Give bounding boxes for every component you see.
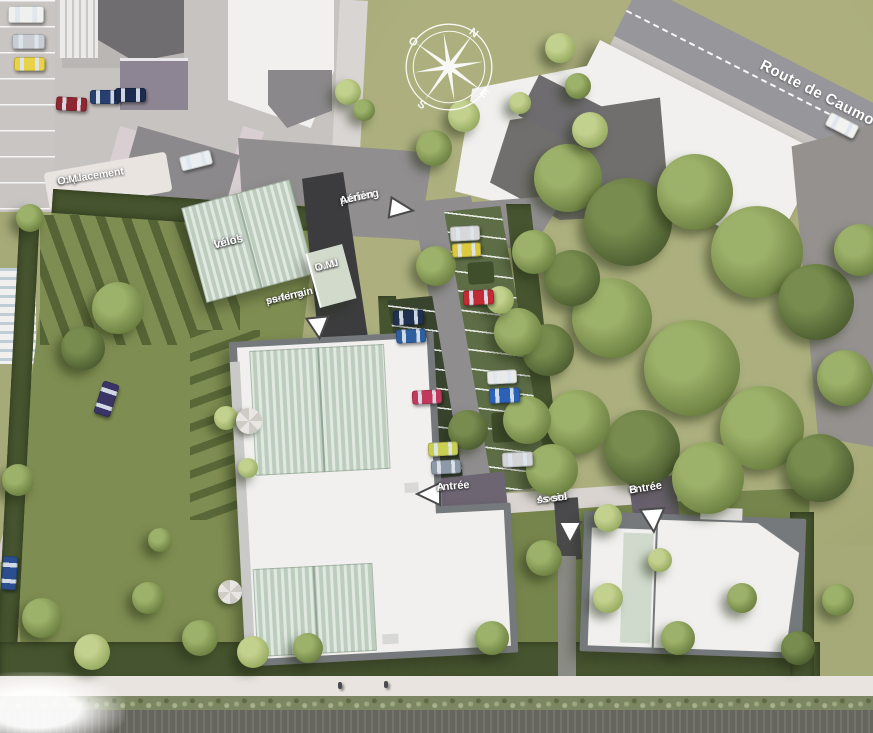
tree — [214, 406, 238, 430]
tree — [416, 246, 456, 286]
site-plan: Route de Caumont — [0, 0, 873, 733]
tree — [22, 598, 62, 638]
tree — [644, 320, 740, 416]
tree — [416, 130, 452, 166]
car — [396, 328, 427, 344]
tree — [353, 99, 375, 121]
car — [452, 242, 482, 257]
car — [179, 149, 214, 171]
tree — [786, 434, 854, 502]
tree — [238, 458, 258, 478]
car — [115, 88, 146, 102]
pedestrian — [338, 682, 342, 689]
car — [1, 556, 18, 591]
car — [487, 369, 518, 385]
car — [93, 380, 120, 418]
tree — [526, 444, 578, 496]
tree — [593, 583, 623, 613]
tree — [657, 154, 733, 230]
car — [12, 34, 45, 49]
parasol — [236, 408, 262, 434]
car — [489, 387, 521, 404]
tree — [74, 634, 110, 670]
tree — [778, 264, 854, 340]
tree — [545, 33, 575, 63]
car — [14, 57, 45, 71]
car — [412, 389, 443, 405]
tree — [661, 621, 695, 655]
tree — [604, 410, 680, 486]
car — [824, 112, 859, 140]
entree-a-line2: A — [436, 481, 445, 494]
tree — [781, 631, 815, 665]
parasol — [218, 580, 242, 604]
car — [56, 96, 88, 112]
car — [450, 225, 481, 242]
tree — [92, 282, 144, 334]
tree — [132, 582, 164, 614]
tree — [834, 224, 873, 276]
car — [393, 309, 425, 326]
tree — [503, 396, 551, 444]
pedestrian — [384, 681, 388, 688]
tree — [572, 112, 608, 148]
tree — [293, 633, 323, 663]
car — [502, 451, 534, 468]
car — [428, 441, 459, 457]
tree — [512, 230, 556, 274]
tree — [727, 583, 757, 613]
tree — [509, 92, 531, 114]
tree — [475, 621, 509, 655]
car — [431, 459, 462, 475]
tree — [494, 308, 542, 356]
tree — [594, 504, 622, 532]
compass-n: N — [467, 26, 481, 40]
tree — [182, 620, 218, 656]
tree — [648, 548, 672, 572]
tree — [61, 326, 105, 370]
entree-b-line2: B — [628, 484, 638, 497]
car — [463, 289, 495, 306]
tree — [148, 528, 172, 552]
tree — [672, 442, 744, 514]
tree — [2, 464, 34, 496]
tree — [817, 350, 873, 406]
tree — [16, 204, 44, 232]
tree — [237, 636, 269, 668]
tree — [822, 584, 854, 616]
car — [8, 6, 44, 23]
tree — [565, 73, 591, 99]
